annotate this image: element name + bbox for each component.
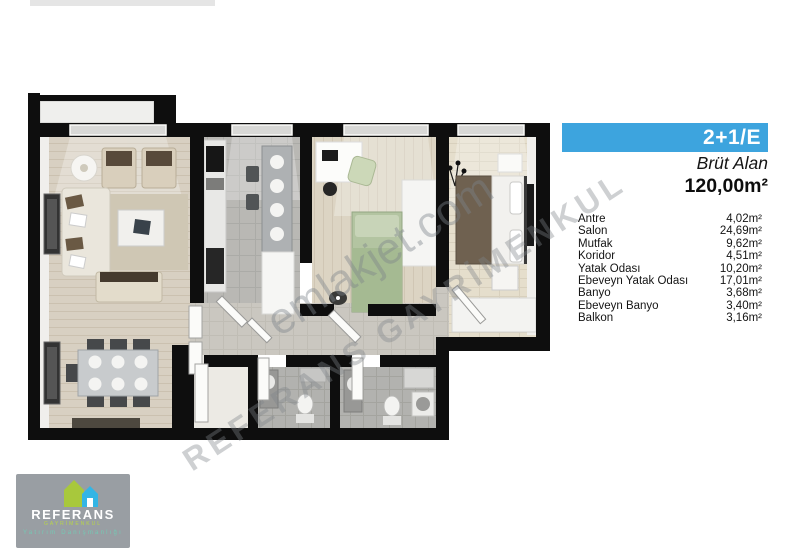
table-row: Salon24,69m²	[578, 225, 762, 237]
logo-name: REFERANS	[31, 508, 115, 521]
tv-unit	[527, 184, 534, 246]
desk-chair	[323, 182, 337, 196]
floor-plan-sheet: emlakjet.com REFERANS GAYRİMENKUL 2+1/E …	[0, 0, 800, 555]
scan-artifact	[30, 0, 215, 6]
shower	[404, 368, 434, 388]
salon-door	[189, 306, 202, 338]
entrance-door	[195, 364, 208, 422]
toilet	[297, 394, 313, 414]
table-row: Ebeveyn Banyo3,40m²	[578, 300, 762, 312]
gross-area-label: Brüt Alan	[562, 153, 768, 174]
cabinet	[262, 252, 294, 314]
table-row: Mutfak9,62m²	[578, 238, 762, 250]
banyo-door	[258, 358, 269, 400]
ebeveyn-yatak-odasi-furniture	[448, 154, 537, 332]
unit-type-label: 2+1/E	[703, 126, 761, 150]
table-row: Yatak Odası10,20m²	[578, 263, 762, 275]
table-row: Antre4,02m²	[578, 213, 762, 225]
gross-area-value: 120,00m²	[562, 175, 768, 198]
logo-subtitle: GAYRİMENKUL	[44, 521, 102, 528]
ebeveyn-banyo-door	[352, 358, 363, 400]
logo-tagline: Yatırım Danışmanlığı	[23, 528, 123, 538]
door-mat	[72, 418, 140, 428]
toilet	[384, 396, 400, 416]
table-row: Banyo3,68m²	[578, 287, 762, 299]
table-row: Balkon3,16m²	[578, 312, 762, 324]
wardrobe	[402, 180, 436, 266]
pillow	[510, 230, 522, 262]
referans-logo: REFERANS GAYRİMENKUL Yatırım Danışmanlığ…	[16, 474, 130, 548]
room-area-table: Antre4,02m² Salon24,69m² Mutfak9,62m² Ko…	[578, 213, 762, 325]
referans-house-icon	[16, 474, 130, 508]
stool	[246, 166, 259, 182]
double-bed	[456, 176, 492, 264]
table-row: Koridor4,51m²	[578, 250, 762, 262]
balkon-floor	[40, 101, 154, 123]
side-table	[492, 266, 518, 290]
nightstand	[498, 154, 522, 172]
table-row: Ebeveyn Yatak Odası17,01m²	[578, 275, 762, 287]
stool	[246, 194, 259, 210]
unit-type-bar: 2+1/E	[562, 123, 768, 152]
pillow	[510, 182, 522, 214]
